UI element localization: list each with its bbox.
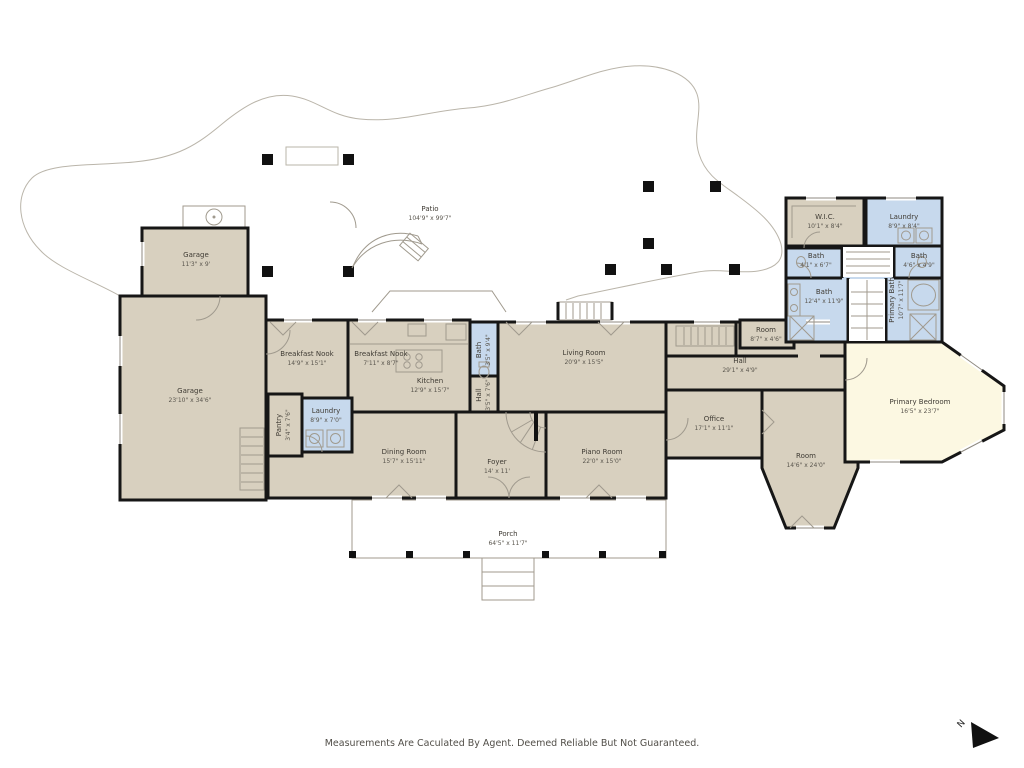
svg-text:29'1" x 4'9": 29'1" x 4'9" — [722, 367, 758, 374]
svg-text:11'3" x 9': 11'3" x 9' — [182, 261, 211, 268]
svg-text:Hall: Hall — [733, 357, 746, 365]
svg-text:22'0" x 15'0": 22'0" x 15'0" — [582, 458, 621, 465]
utility-closet — [183, 206, 245, 228]
svg-text:3'4" x 7'6": 3'4" x 7'6" — [285, 409, 292, 441]
svg-text:12'4" x 11'9": 12'4" x 11'9" — [804, 298, 843, 305]
svg-text:8'9" x 7'0": 8'9" x 7'0" — [310, 417, 342, 424]
floor-plan-page: Garage 11'3" x 9' Garage 23'10" x 34'6" … — [0, 0, 1024, 768]
svg-text:8'7" x 4'6": 8'7" x 4'6" — [750, 336, 782, 343]
svg-text:15'7" x 15'11": 15'7" x 15'11" — [383, 458, 426, 465]
svg-text:7'11" x 8'7": 7'11" x 8'7" — [363, 360, 399, 367]
porch-steps — [482, 558, 534, 600]
svg-text:23'10" x 34'6": 23'10" x 34'6" — [169, 397, 212, 404]
svg-text:Porch: Porch — [498, 530, 517, 538]
svg-text:Office: Office — [704, 415, 724, 423]
svg-text:Patio: Patio — [421, 205, 438, 213]
svg-text:104'9" x 99'7": 104'9" x 99'7" — [409, 215, 452, 222]
svg-text:Laundry: Laundry — [890, 213, 919, 221]
entry-stoop — [558, 302, 612, 320]
svg-text:8'9" x 8'4": 8'9" x 8'4" — [888, 223, 920, 230]
svg-text:Room: Room — [796, 452, 816, 460]
svg-text:Breakfast Nook: Breakfast Nook — [354, 350, 408, 358]
room-office — [666, 390, 762, 458]
svg-text:Piano Room: Piano Room — [581, 448, 622, 456]
label-patio: Patio 104'9" x 99'7" — [409, 205, 452, 222]
svg-text:4'1" x 6'7": 4'1" x 6'7" — [800, 262, 832, 269]
patio-planter — [286, 147, 338, 165]
label-porch: Porch 64'5" x 11'7" — [488, 530, 527, 547]
svg-text:Dining Room: Dining Room — [382, 448, 427, 456]
patio-steps — [372, 291, 506, 312]
svg-text:Breakfast Nook: Breakfast Nook — [280, 350, 334, 358]
svg-text:Pantry: Pantry — [275, 414, 283, 436]
disclaimer-text: Measurements Are Caculated By Agent. Dee… — [325, 738, 700, 749]
svg-text:N: N — [956, 718, 968, 730]
svg-text:Foyer: Foyer — [487, 458, 507, 466]
svg-text:Bath: Bath — [816, 288, 832, 296]
north-arrow-icon: N — [956, 718, 999, 748]
svg-text:20'9" x 15'5": 20'9" x 15'5" — [564, 359, 603, 366]
porch — [349, 500, 666, 600]
svg-text:64'5" x 11'7": 64'5" x 11'7" — [488, 540, 527, 547]
svg-text:14'6" x 24'0": 14'6" x 24'0" — [786, 462, 825, 469]
svg-text:17'1" x 11'1": 17'1" x 11'1" — [694, 425, 733, 432]
svg-text:Bath: Bath — [911, 252, 927, 260]
svg-text:14' x 11': 14' x 11' — [484, 468, 510, 475]
svg-text:Living Room: Living Room — [563, 349, 606, 357]
svg-text:3'5" x 7'6": 3'5" x 7'6" — [485, 379, 492, 411]
svg-text:W.I.C.: W.I.C. — [815, 213, 835, 221]
svg-text:Kitchen: Kitchen — [417, 377, 443, 385]
svg-text:Laundry: Laundry — [312, 407, 341, 415]
svg-text:10'7" x 11'7": 10'7" x 11'7" — [898, 280, 905, 319]
svg-text:Bath: Bath — [475, 342, 483, 358]
svg-text:Bath: Bath — [808, 252, 824, 260]
outdoor-bar — [352, 233, 428, 268]
floor-plan-canvas: Garage 11'3" x 9' Garage 23'10" x 34'6" … — [0, 0, 1024, 768]
svg-text:4'6" x 4'9": 4'6" x 4'9" — [903, 262, 935, 269]
svg-text:Primary Bath: Primary Bath — [888, 277, 896, 323]
svg-text:Primary Bedroom: Primary Bedroom — [890, 398, 951, 406]
svg-text:16'5" x 23'7": 16'5" x 23'7" — [900, 408, 939, 415]
svg-text:14'9" x 15'1": 14'9" x 15'1" — [287, 360, 326, 367]
svg-text:Hall: Hall — [475, 388, 483, 401]
svg-text:3'5" x 9'4": 3'5" x 9'4" — [485, 334, 492, 366]
svg-text:Garage: Garage — [183, 251, 209, 259]
svg-text:12'9" x 15'7": 12'9" x 15'7" — [410, 387, 449, 394]
svg-text:10'1" x 8'4": 10'1" x 8'4" — [807, 223, 843, 230]
room-living — [498, 322, 666, 412]
svg-text:Room: Room — [756, 326, 776, 334]
svg-text:Garage: Garage — [177, 387, 203, 395]
patio-pillars — [262, 154, 740, 277]
